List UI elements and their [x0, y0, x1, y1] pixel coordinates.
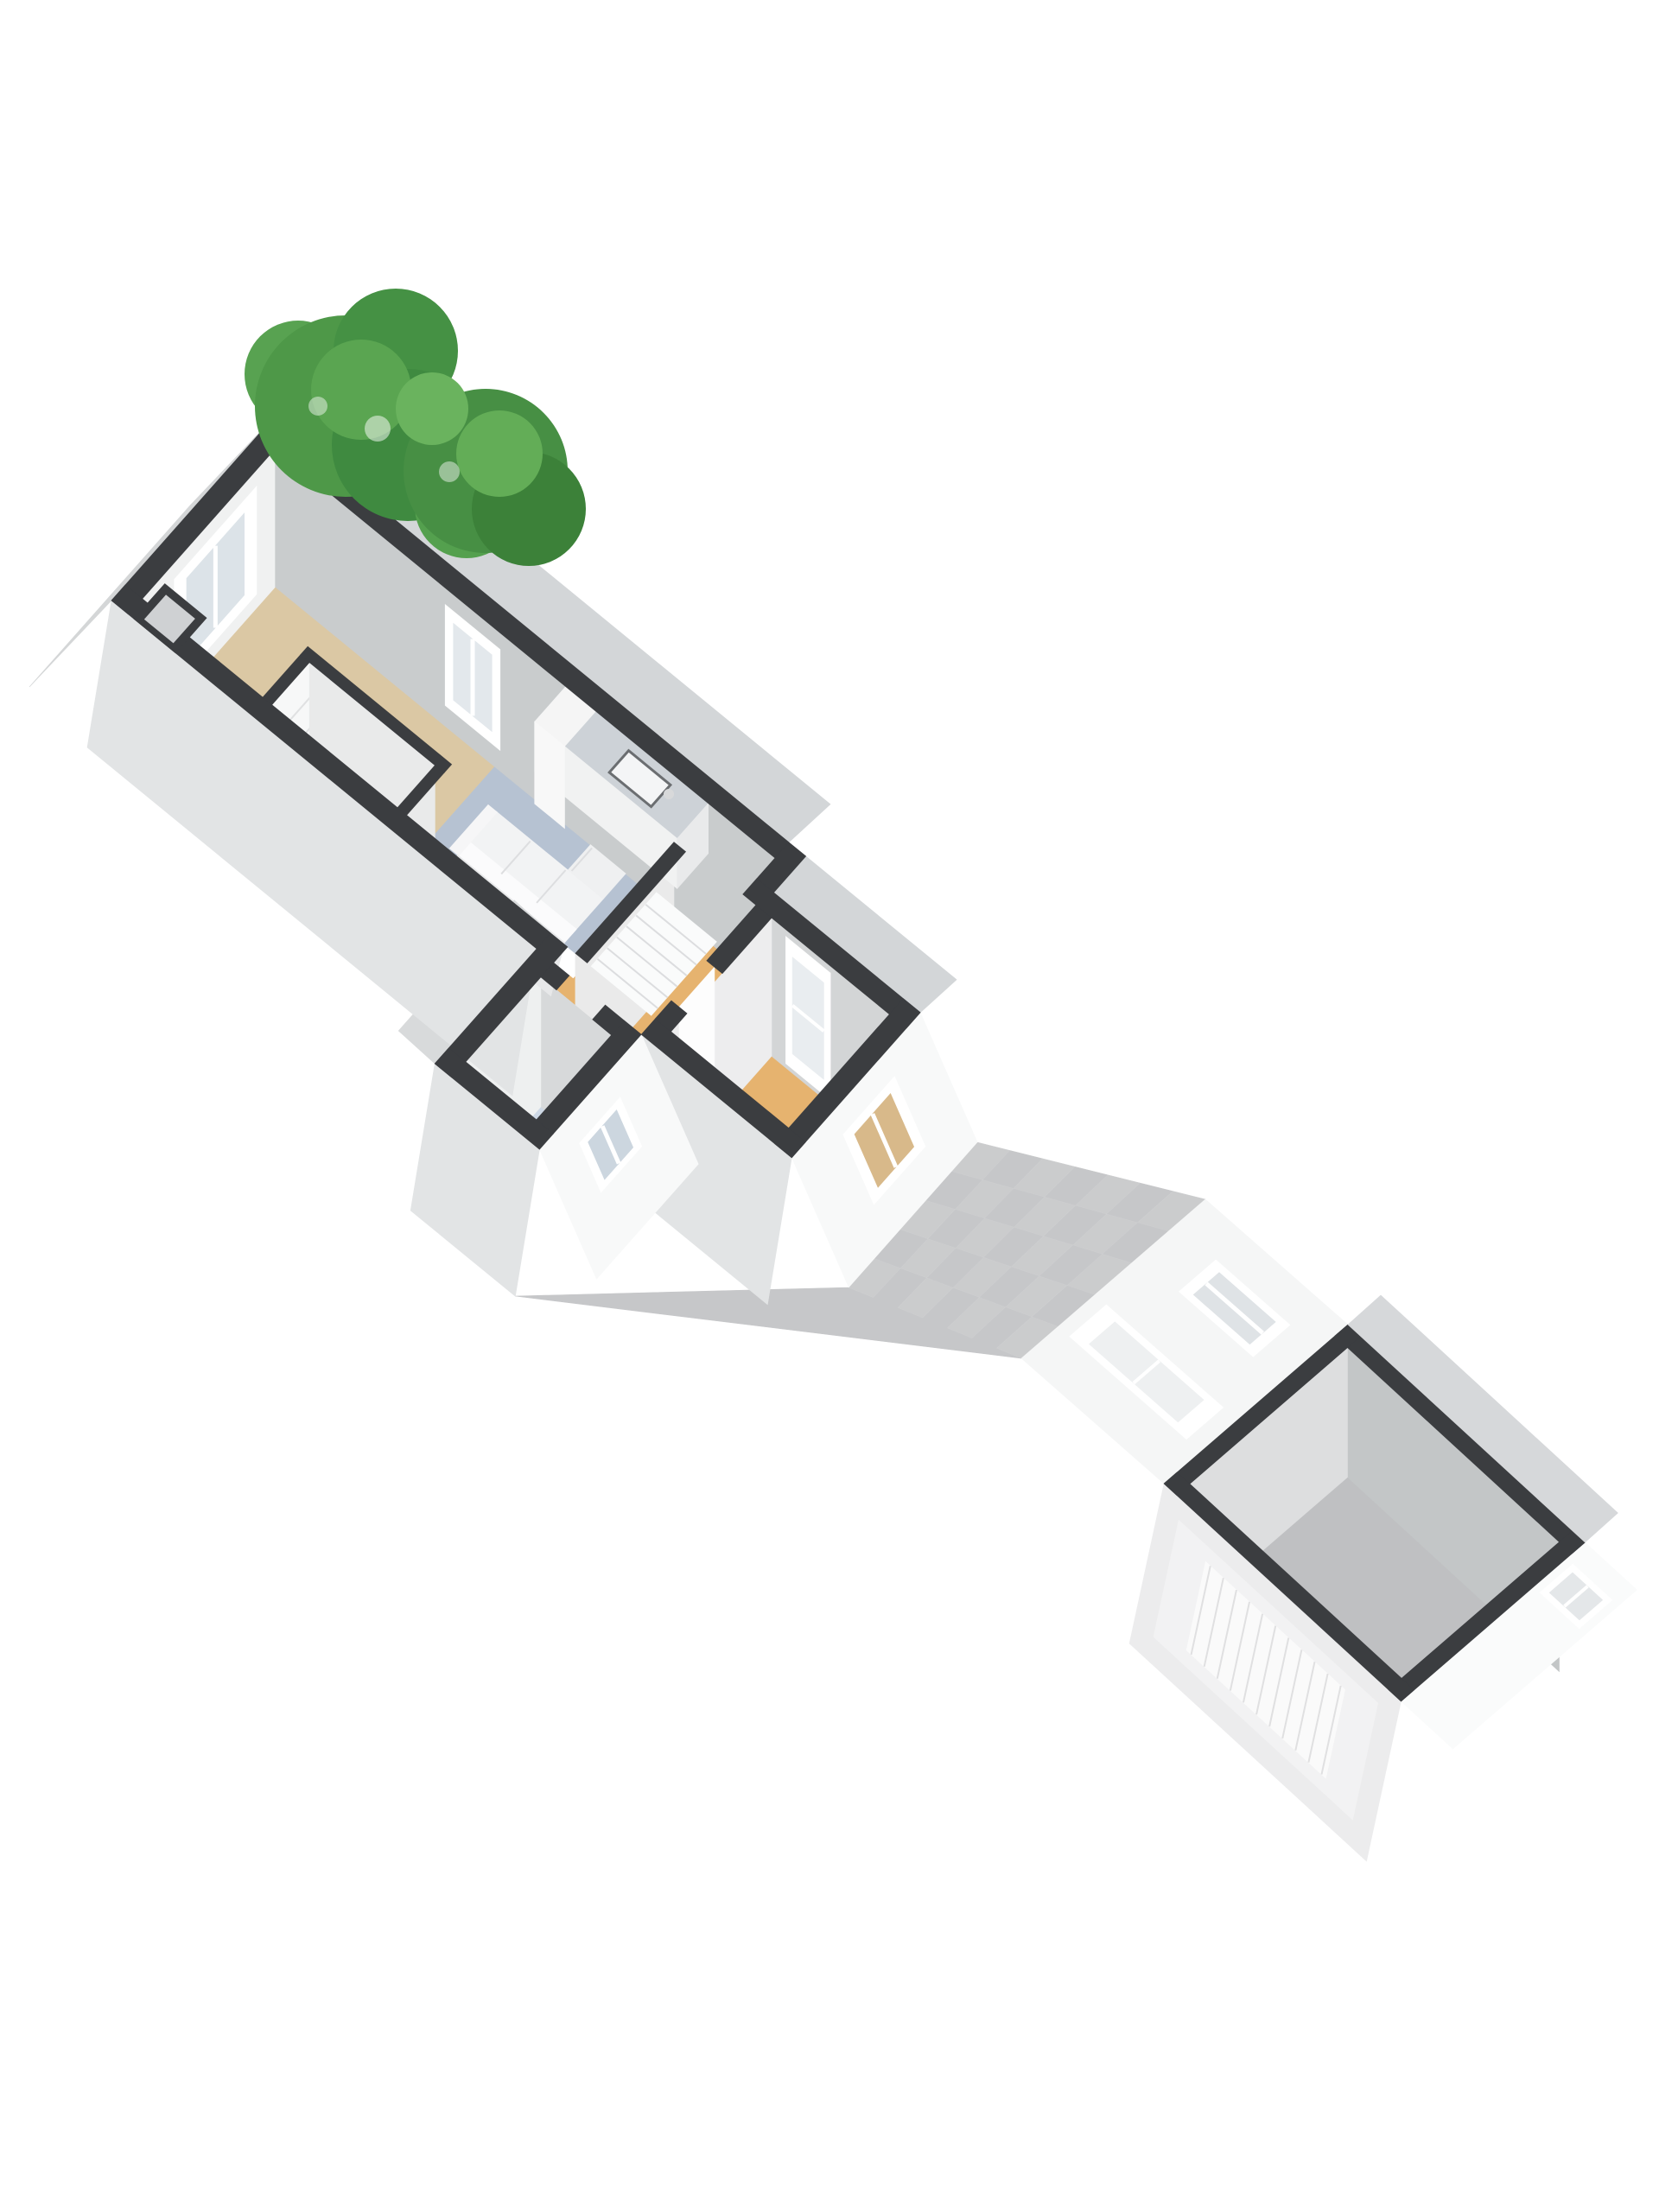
tree-foliage-8: [456, 410, 543, 497]
tree-foliage-9: [311, 340, 411, 440]
tree-foliage-10: [396, 372, 468, 445]
kitchen-faucet: [664, 789, 674, 799]
tree-gap-2: [439, 461, 460, 482]
tree-gap-1: [365, 416, 391, 442]
floorplan-3d-render: [0, 0, 1659, 2212]
tree-gap-3: [308, 397, 327, 416]
floorplan-scene-canvas: [0, 0, 1659, 2212]
